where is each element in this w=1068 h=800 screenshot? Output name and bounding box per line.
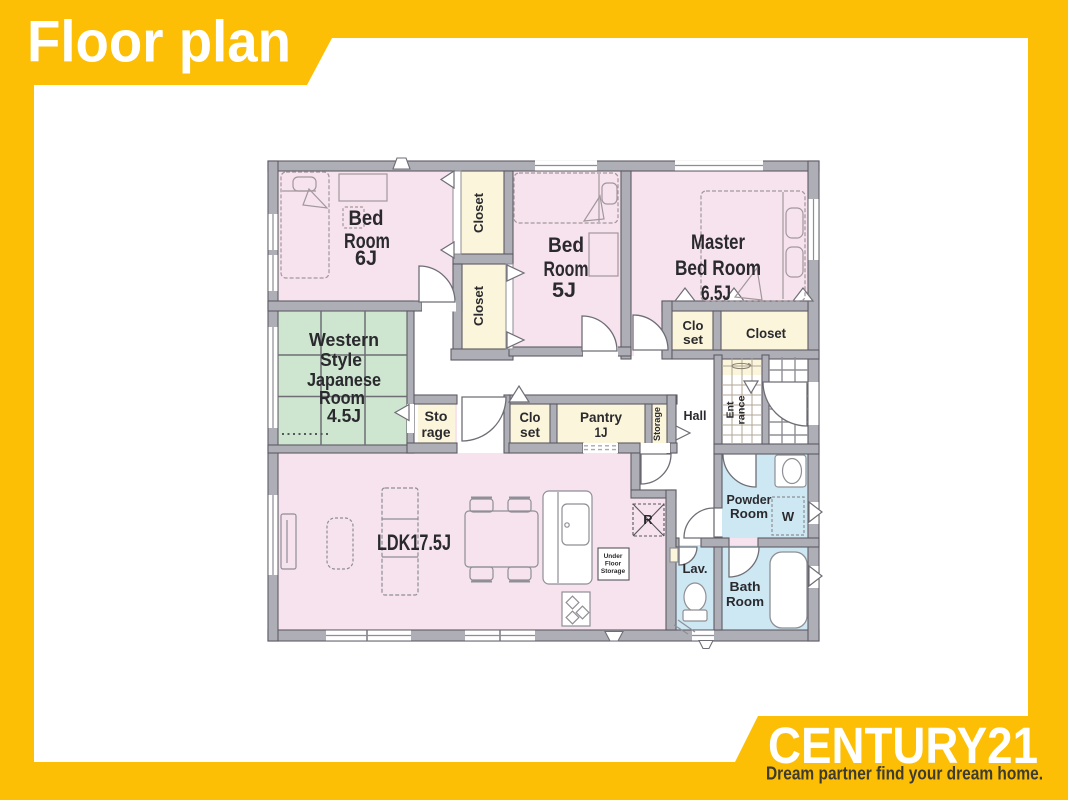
- svg-text:Closet: Closet: [471, 285, 486, 326]
- svg-text:Lav.: Lav.: [683, 561, 708, 576]
- svg-text:Closet: Closet: [746, 326, 786, 341]
- svg-text:Floor: Floor: [605, 561, 622, 568]
- svg-text:4.5J: 4.5J: [327, 406, 361, 426]
- svg-text:R: R: [643, 512, 653, 527]
- svg-text:Closet: Closet: [471, 192, 486, 233]
- svg-text:5J: 5J: [552, 279, 576, 302]
- svg-text:Bed: Bed: [349, 207, 384, 230]
- svg-text:Storage: Storage: [652, 407, 663, 441]
- svg-text:LDK17.5J: LDK17.5J: [377, 530, 451, 555]
- svg-text:6J: 6J: [355, 247, 377, 270]
- svg-text:Bed Room: Bed Room: [675, 257, 761, 280]
- svg-text:set: set: [520, 425, 541, 440]
- svg-text:Clo: Clo: [520, 410, 541, 425]
- svg-text:Clo: Clo: [683, 319, 704, 333]
- svg-text:Room: Room: [319, 388, 365, 408]
- svg-text:Room: Room: [730, 506, 768, 521]
- svg-text:Room: Room: [544, 258, 589, 281]
- svg-text:Storage: Storage: [601, 568, 626, 575]
- svg-text:Japanese: Japanese: [307, 370, 381, 390]
- svg-text:Pantry: Pantry: [580, 410, 622, 425]
- svg-text:Under: Under: [604, 553, 623, 560]
- svg-text:Sto: Sto: [425, 409, 448, 424]
- svg-text:Ent: Ent: [726, 401, 737, 419]
- svg-text:Bed: Bed: [548, 234, 584, 257]
- svg-text:Style: Style: [320, 350, 362, 370]
- svg-text:Room: Room: [726, 594, 764, 609]
- svg-text:W: W: [782, 509, 795, 524]
- svg-text:Master: Master: [691, 231, 745, 254]
- svg-text:Hall: Hall: [684, 408, 707, 423]
- svg-text:rage: rage: [422, 425, 451, 440]
- svg-text:Floor plan: Floor plan: [27, 10, 291, 75]
- svg-text:1J: 1J: [595, 425, 608, 440]
- svg-text:Bath: Bath: [730, 579, 761, 594]
- svg-text:rance: rance: [737, 395, 748, 424]
- svg-text:Powder: Powder: [727, 492, 772, 507]
- svg-text:6.5J: 6.5J: [701, 282, 731, 305]
- svg-text:Western: Western: [309, 330, 379, 350]
- svg-text:set: set: [683, 333, 704, 347]
- svg-text:Dream partner find your dream: Dream partner find your dream home.: [766, 764, 1043, 784]
